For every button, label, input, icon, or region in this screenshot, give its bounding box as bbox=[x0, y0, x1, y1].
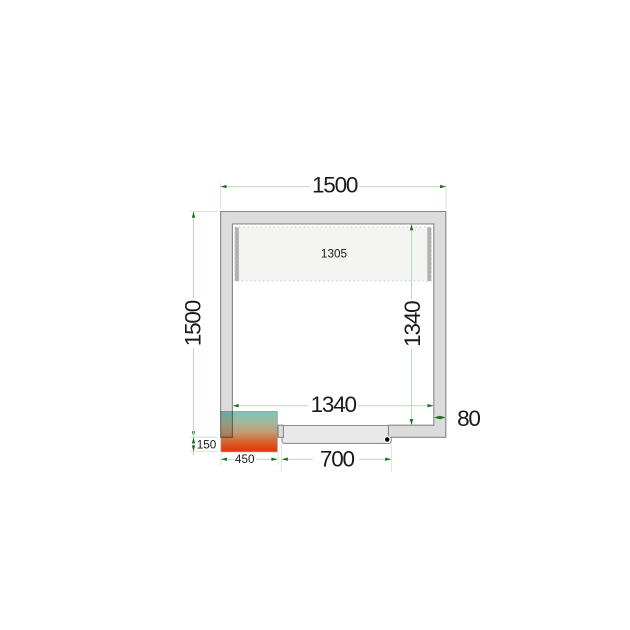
svg-text:1340: 1340 bbox=[400, 301, 425, 347]
svg-text:700: 700 bbox=[320, 446, 355, 471]
svg-text:1500: 1500 bbox=[312, 173, 358, 198]
svg-text:450: 450 bbox=[235, 453, 255, 466]
svg-text:1305: 1305 bbox=[321, 247, 348, 260]
svg-text:1500: 1500 bbox=[181, 300, 206, 346]
svg-text:1340: 1340 bbox=[311, 392, 357, 417]
svg-text:80: 80 bbox=[457, 406, 480, 431]
svg-text:150: 150 bbox=[197, 438, 217, 451]
